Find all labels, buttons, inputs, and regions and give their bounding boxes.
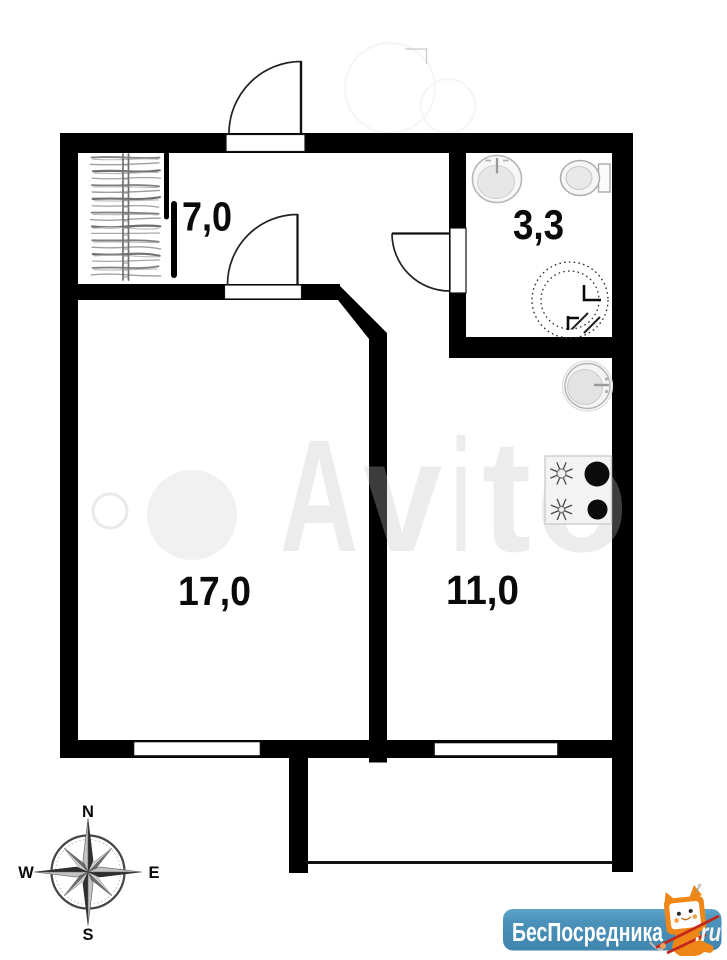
svg-text:A: A: [280, 406, 358, 585]
svg-text:S: S: [82, 926, 93, 944]
svg-text:i: i: [452, 406, 470, 585]
svg-text:N: N: [82, 803, 94, 821]
svg-text:v: v: [363, 406, 442, 585]
svg-text:17,0: 17,0: [178, 568, 251, 614]
svg-text:3,3: 3,3: [513, 201, 564, 248]
svg-text:БесПосредника: БесПосредника: [512, 919, 664, 947]
svg-text:7,0: 7,0: [182, 194, 232, 240]
svg-text:W: W: [18, 864, 34, 882]
svg-text:.ru: .ru: [695, 919, 721, 947]
svg-text:11,0: 11,0: [446, 567, 519, 613]
svg-text:t: t: [482, 406, 531, 585]
svg-text:E: E: [148, 864, 159, 882]
